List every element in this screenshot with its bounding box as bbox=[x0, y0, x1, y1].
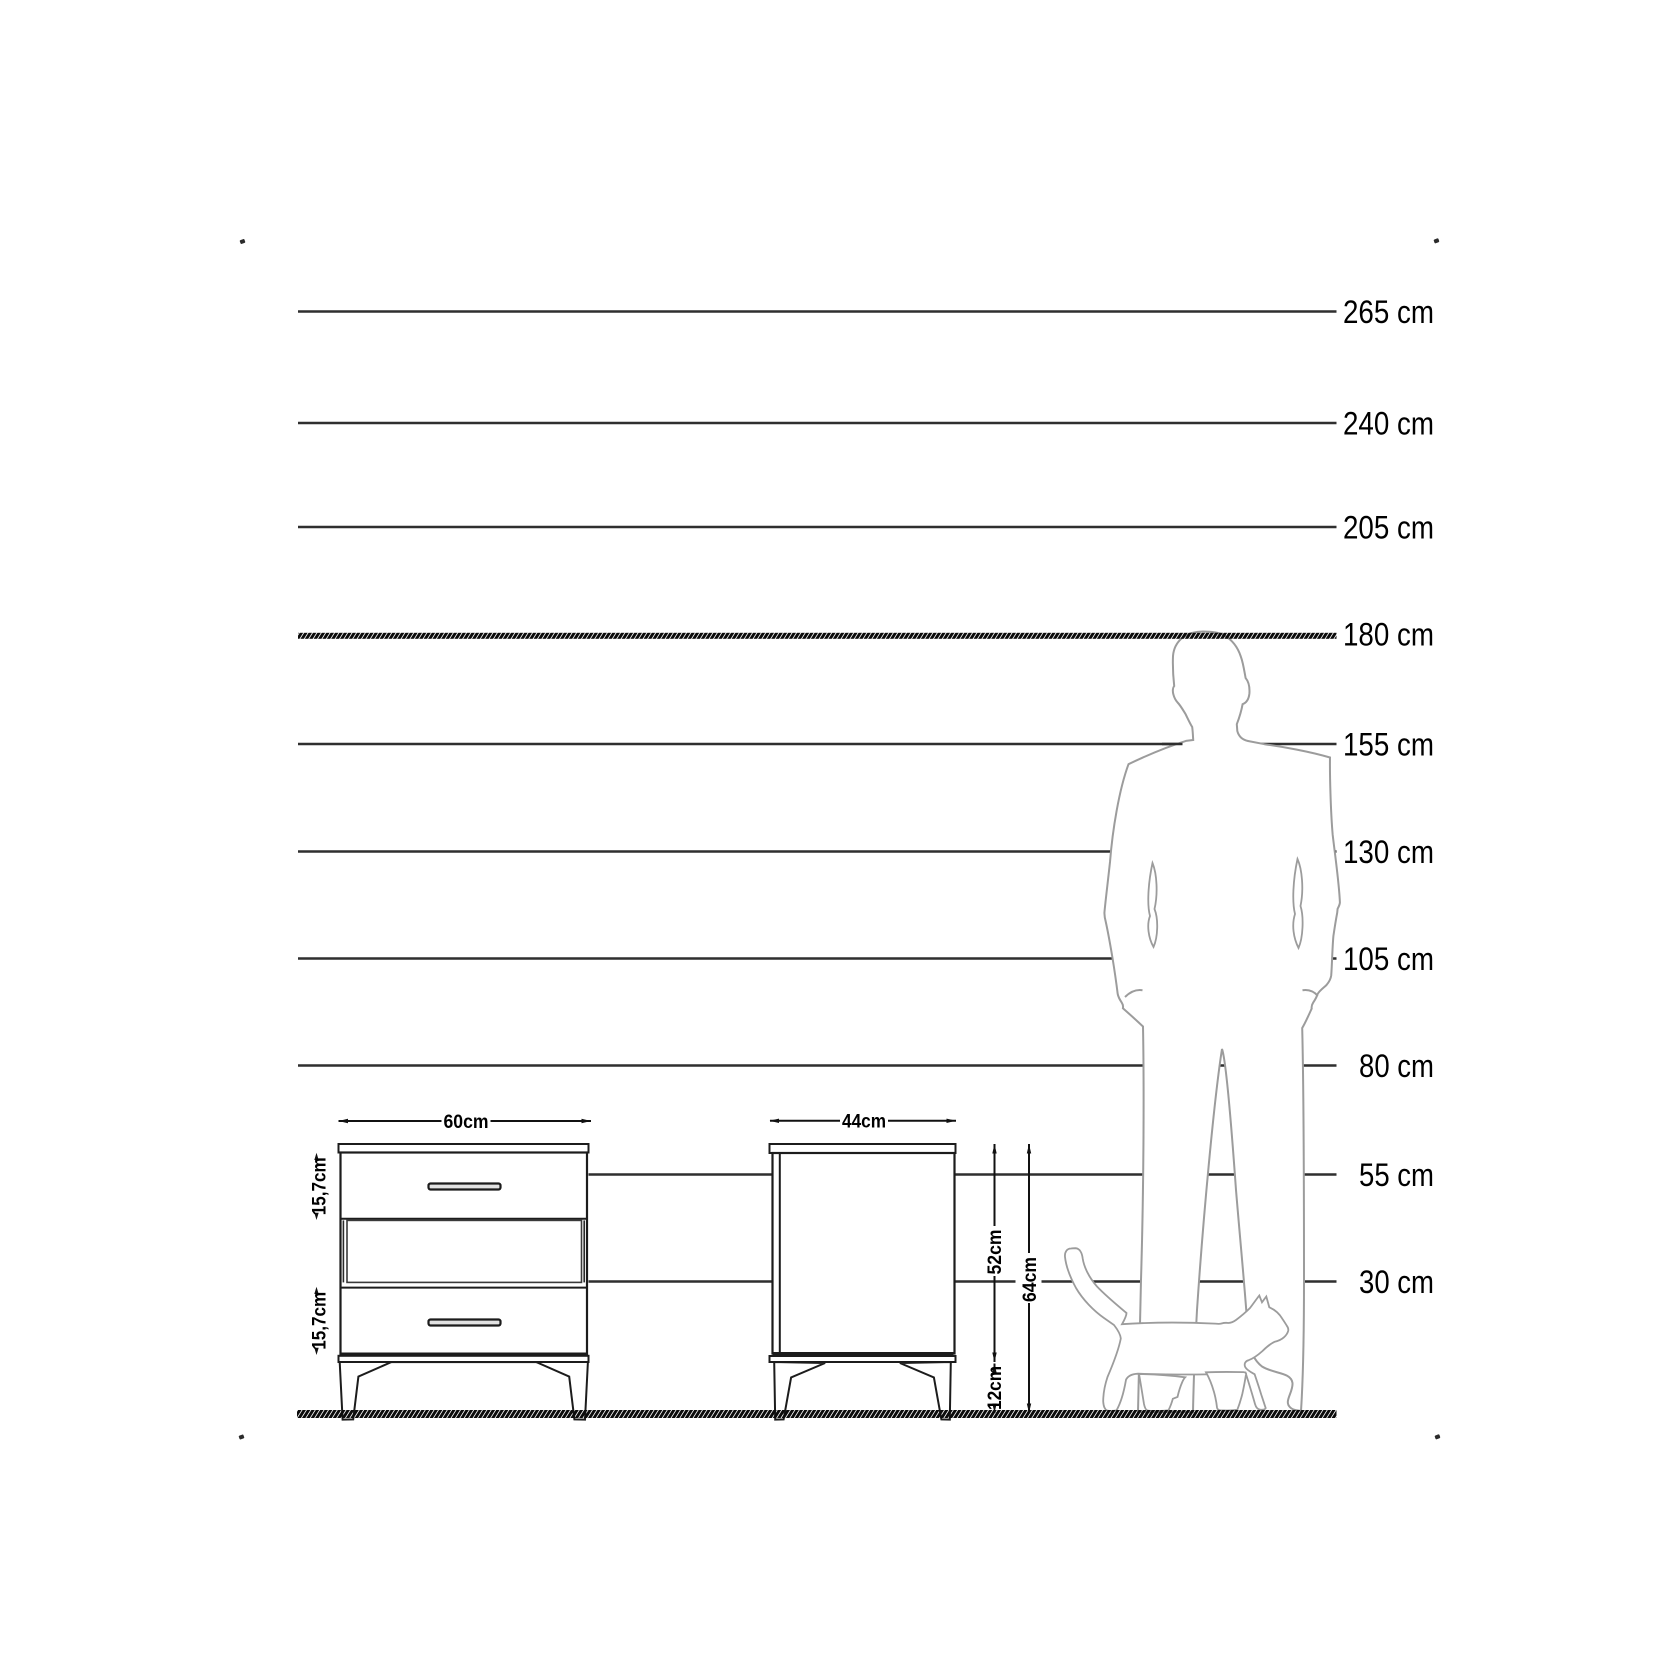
svg-text:180 cm: 180 cm bbox=[1343, 616, 1434, 652]
svg-text:205 cm: 205 cm bbox=[1343, 509, 1434, 545]
svg-text:105 cm: 105 cm bbox=[1343, 941, 1434, 977]
svg-text:15,7cm: 15,7cm bbox=[310, 1157, 331, 1215]
svg-text:155 cm: 155 cm bbox=[1343, 726, 1434, 762]
svg-text:80 cm: 80 cm bbox=[1359, 1048, 1434, 1084]
svg-text:12cm: 12cm bbox=[985, 1366, 1006, 1410]
svg-text:265 cm: 265 cm bbox=[1343, 294, 1434, 330]
svg-text:130 cm: 130 cm bbox=[1343, 834, 1434, 870]
svg-text:60cm: 60cm bbox=[444, 1112, 489, 1133]
svg-text:64cm: 64cm bbox=[1020, 1257, 1041, 1302]
svg-text:52cm: 52cm bbox=[985, 1230, 1006, 1275]
svg-text:55 cm: 55 cm bbox=[1359, 1157, 1434, 1193]
svg-text:44cm: 44cm bbox=[842, 1112, 886, 1133]
svg-text:30 cm: 30 cm bbox=[1359, 1264, 1434, 1300]
svg-text:240 cm: 240 cm bbox=[1343, 405, 1434, 441]
svg-text:15,7cm: 15,7cm bbox=[310, 1292, 331, 1350]
